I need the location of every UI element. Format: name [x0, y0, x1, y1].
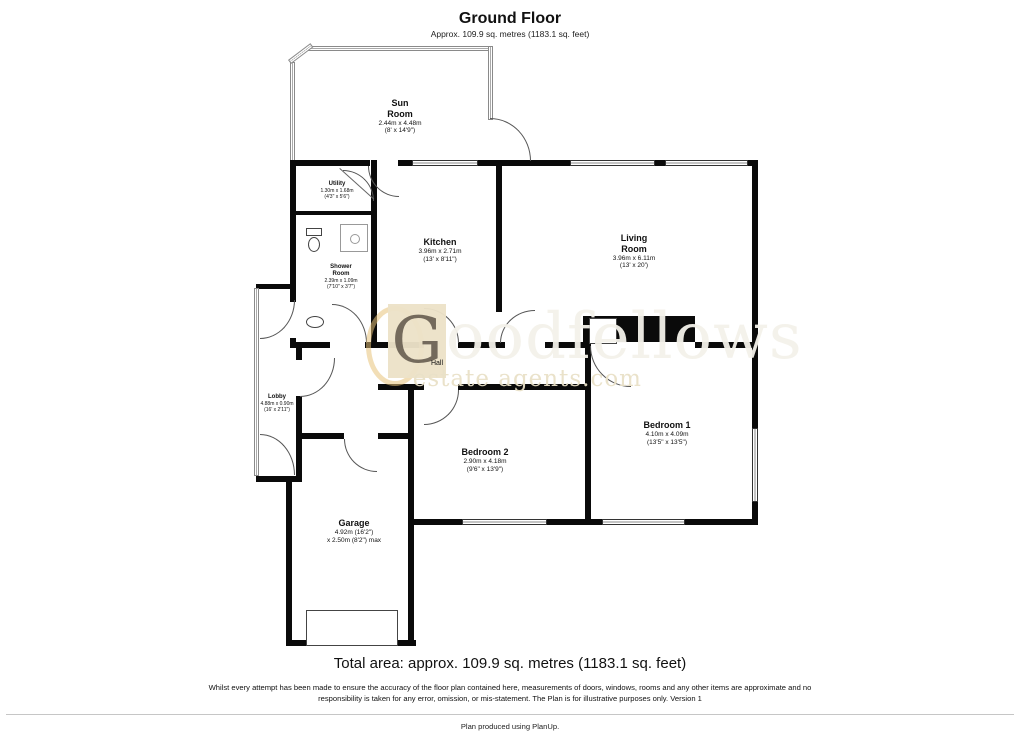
room-label-bedroom-2: Bedroom 2 2.90m x 4.18m (9'6" x 13'9"): [461, 447, 508, 473]
room-label-shower-room: Shower Room 2.39m x 1.09m (7'10" x 3'7"): [324, 264, 357, 290]
plan-credit-text: Plan produced using PlanUp.: [0, 722, 1020, 731]
door-arc-lobby-bottom: [260, 434, 295, 475]
door-arc-garage: [344, 439, 377, 472]
room-name: Kitchen: [419, 237, 462, 248]
room-name: Living Room: [613, 233, 656, 255]
sunroom-window-left: [290, 62, 295, 162]
door-arc-living-room: [500, 310, 535, 343]
wall: [256, 476, 302, 482]
wall: [256, 284, 296, 289]
door-arc-lobby-top: [260, 300, 295, 339]
room-label-utility: Utility 1.30m x 1.68m (4'3" x 5'6"): [320, 181, 353, 200]
room-dims-metric: 3.96m x 6.11m: [613, 255, 656, 263]
total-area-text: Total area: approx. 109.9 sq. metres (11…: [0, 655, 1020, 672]
floorplan-page: Ground Floor Approx. 109.9 sq. metres (1…: [0, 0, 1020, 741]
wall: [290, 160, 296, 302]
room-dims-imperial: (13' x 8'11"): [419, 256, 462, 264]
room-dims-imperial: (8' x 14'9"): [379, 127, 422, 135]
door-arc-bedroom2: [424, 390, 459, 425]
wall: [545, 342, 585, 348]
wall: [695, 342, 758, 348]
door-arc-sunroom: [490, 118, 531, 161]
door-arc-shower-room: [332, 304, 367, 343]
room-dims-metric: 2.44m x 4.48m: [379, 120, 422, 128]
room-label-sun-room: Sun Room 2.44m x 4.48m (8' x 14'9"): [379, 98, 422, 135]
room-dims-metric: 4.92m (16'2"): [327, 529, 381, 537]
room-dims-metric: 2.90m x 4.18m: [461, 458, 508, 466]
room-name: Bedroom 2: [461, 447, 508, 458]
bedroom2-window: [462, 519, 547, 525]
room-label-kitchen: Kitchen 3.96m x 2.71m (13' x 8'11"): [419, 237, 462, 263]
room-dims-imperial: (7'10" x 3'7"): [324, 284, 357, 290]
page-subtitle: Approx. 109.9 sq. metres (1183.1 sq. fee…: [0, 29, 1020, 39]
bedroom1-side-window: [752, 428, 758, 502]
toilet-icon: [306, 228, 322, 236]
living-room-window-1: [570, 160, 655, 166]
living-room-window-2: [665, 160, 748, 166]
sunroom-window-top: [308, 46, 492, 51]
door-arc-lobby-hall: [300, 358, 335, 397]
shower-drain-icon: [350, 234, 360, 244]
room-dims-imperial: (16' x 2'11"): [260, 407, 293, 413]
wall: [365, 342, 424, 348]
room-label-lobby: Lobby 4.88m x 0.90m (16' x 2'11"): [260, 394, 293, 413]
room-dims-imperial: x 2.50m (8'2") max: [327, 537, 381, 545]
wall: [458, 342, 505, 348]
room-name: Lobby: [260, 394, 293, 401]
lobby-window-wall: [254, 288, 259, 476]
room-dims-metric: 3.96m x 2.71m: [419, 248, 462, 256]
wall: [290, 160, 370, 166]
room-name: Shower Room: [324, 264, 357, 278]
disclaimer-line-2: responsibility is taken for any error, o…: [0, 694, 1020, 703]
room-label-bedroom-1: Bedroom 1 4.10m x 4.09m (13'5" x 13'5"): [643, 420, 690, 446]
room-name: Utility: [320, 181, 353, 188]
room-dims-imperial: (13'5" x 13'5"): [643, 439, 690, 447]
watermark: G oodfellows estate agents.com: [0, 0, 1020, 741]
room-dims-imperial: (13' x 20'): [613, 262, 656, 270]
wall: [408, 390, 414, 645]
room-dims-imperial: (4'3" x 5'6"): [320, 194, 353, 200]
wall: [378, 384, 424, 390]
room-label-garage: Garage 4.92m (16'2") x 2.50m (8'2") max: [327, 518, 381, 544]
basin-icon: [306, 316, 324, 328]
wall: [302, 433, 344, 439]
toilet-bowl-icon: [308, 237, 320, 252]
wall: [286, 476, 292, 646]
sunroom-window-right: [488, 46, 493, 120]
utility-partition: [292, 211, 373, 215]
kitchen-window: [412, 160, 478, 166]
wall: [585, 342, 591, 525]
room-name: Hall: [431, 360, 443, 368]
disclaimer-line-1: Whilst every attempt has been made to en…: [0, 683, 1020, 692]
sunroom-window-chamfer: [288, 43, 313, 64]
room-name: Garage: [327, 518, 381, 529]
room-name: Sun Room: [379, 98, 422, 120]
room-name: Bedroom 1: [643, 420, 690, 431]
room-dims-metric: 4.10m x 4.09m: [643, 431, 690, 439]
room-dims-imperial: (9'6" x 13'9"): [461, 466, 508, 474]
bedroom1-window: [602, 519, 685, 525]
wardrobe-door-opening: [589, 318, 617, 344]
door-arc-kitchen: [424, 308, 459, 343]
wall: [458, 384, 590, 390]
footer-divider: [6, 714, 1014, 715]
room-label-living-room: Living Room 3.96m x 6.11m (13' x 20'): [613, 233, 656, 270]
wall: [496, 160, 502, 312]
room-label-hall: Hall: [431, 360, 443, 368]
page-title: Ground Floor: [0, 10, 1020, 28]
door-arc-bedroom1: [590, 346, 631, 387]
wall: [378, 433, 412, 439]
garage-door: [306, 610, 398, 646]
